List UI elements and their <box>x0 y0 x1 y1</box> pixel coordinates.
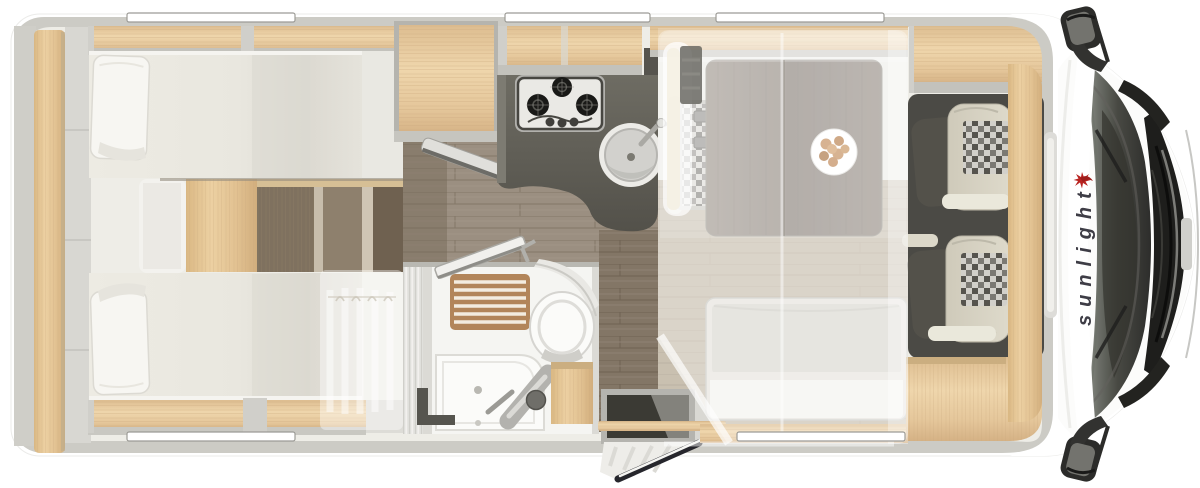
svg-text:sunlight: sunlight <box>1074 184 1096 326</box>
